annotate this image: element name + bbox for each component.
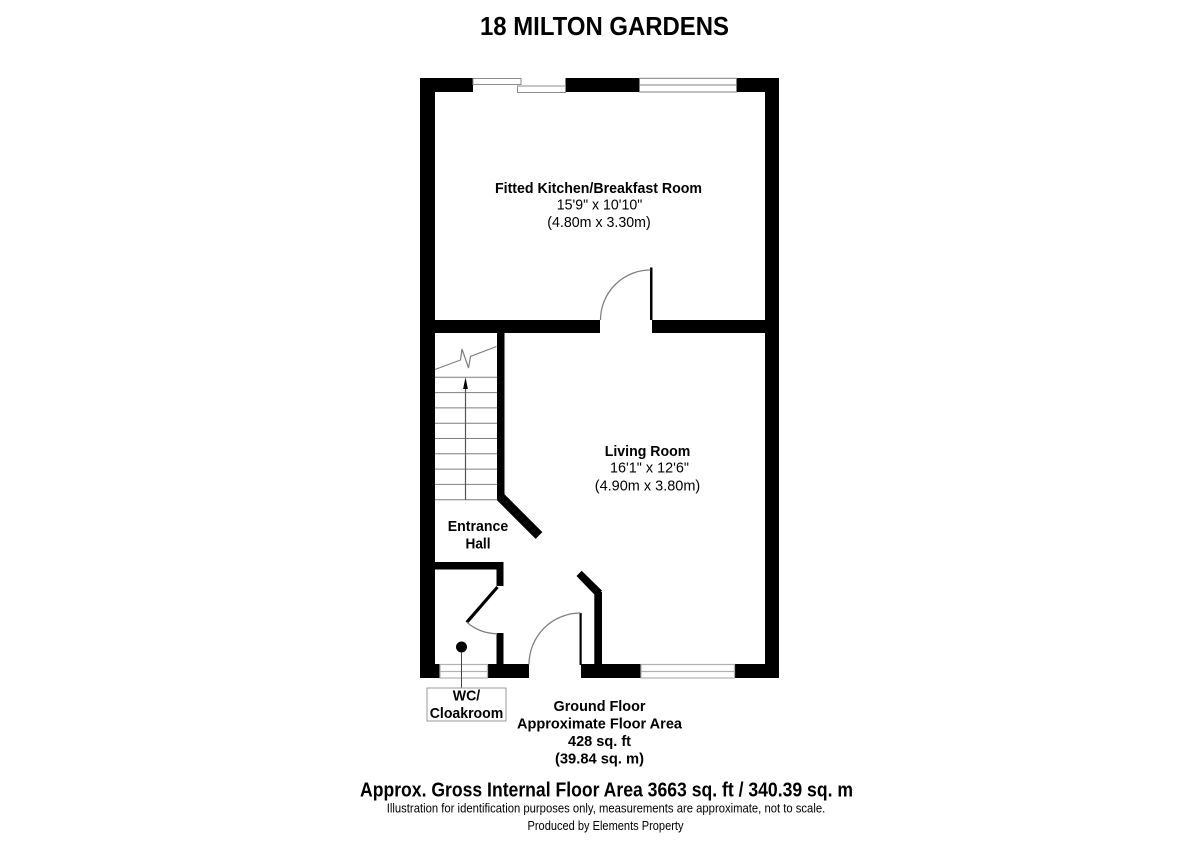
svg-text:Illustration for identificatio: Illustration for identification purposes… [387, 802, 826, 816]
svg-text:(39.84 sq. m): (39.84 sq. m) [555, 751, 644, 768]
svg-text:16'1" x 12'6": 16'1" x 12'6" [610, 460, 689, 477]
svg-text:Hall: Hall [466, 536, 491, 553]
svg-text:15'9" x 10'10": 15'9" x 10'10" [557, 197, 643, 214]
svg-text:(4.90m x 3.80m): (4.90m x 3.80m) [595, 478, 701, 495]
svg-text:Cloakroom: Cloakroom [430, 705, 504, 722]
svg-text:(4.80m x 3.30m): (4.80m x 3.30m) [547, 214, 651, 231]
svg-text:WC/: WC/ [453, 688, 481, 705]
svg-text:Entrance: Entrance [448, 518, 509, 535]
svg-text:428 sq. ft: 428 sq. ft [568, 733, 631, 750]
svg-text:18 MILTON GARDENS: 18 MILTON GARDENS [480, 11, 729, 41]
svg-text:Approximate Floor Area: Approximate Floor Area [517, 716, 683, 733]
svg-text:Produced by Elements Property: Produced by Elements Property [528, 819, 685, 833]
svg-text:Fitted Kitchen/Breakfast Room: Fitted Kitchen/Breakfast Room [495, 180, 702, 197]
svg-text:Approx. Gross Internal Floor A: Approx. Gross Internal Floor Area 3663 s… [360, 779, 853, 802]
svg-text:Living Room: Living Room [605, 443, 691, 460]
svg-text:Ground Floor: Ground Floor [554, 698, 646, 715]
